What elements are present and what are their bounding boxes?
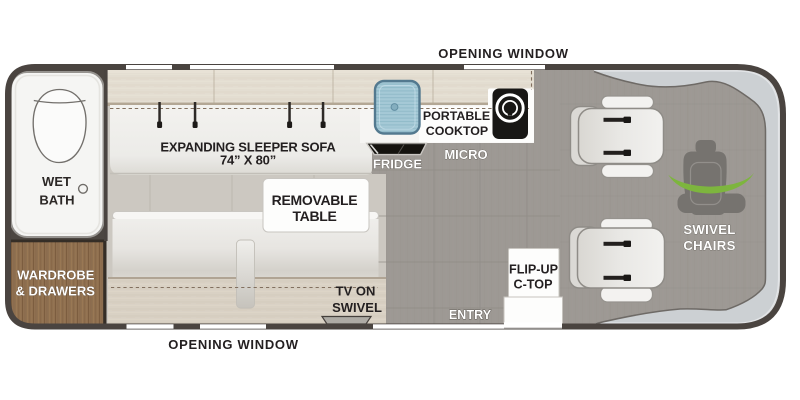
svg-text:TABLE: TABLE (292, 208, 336, 224)
svg-text:& DRAWERS: & DRAWERS (15, 284, 95, 299)
svg-text:FRIDGE: FRIDGE (373, 157, 422, 172)
svg-text:BATH: BATH (39, 193, 74, 208)
svg-text:ENTRY: ENTRY (449, 308, 492, 322)
svg-text:FLIP-UP: FLIP-UP (509, 263, 558, 277)
svg-text:74” X 80”: 74” X 80” (220, 153, 276, 168)
svg-text:CHAIRS: CHAIRS (683, 238, 735, 253)
svg-text:OPENING WINDOW: OPENING WINDOW (168, 337, 298, 352)
svg-text:C-TOP: C-TOP (514, 278, 553, 292)
svg-text:SWIVEL: SWIVEL (683, 222, 735, 237)
svg-text:OPENING WINDOW: OPENING WINDOW (438, 46, 568, 61)
svg-text:PORTABLE: PORTABLE (423, 109, 490, 123)
svg-text:MICRO: MICRO (444, 147, 487, 162)
svg-text:WARDROBE: WARDROBE (17, 268, 95, 283)
svg-text:SWIVEL: SWIVEL (332, 300, 382, 315)
svg-text:TV ON: TV ON (336, 284, 376, 299)
svg-text:REMOVABLE: REMOVABLE (272, 192, 358, 208)
svg-text:WET: WET (42, 174, 71, 189)
svg-text:COOKTOP: COOKTOP (426, 124, 488, 138)
